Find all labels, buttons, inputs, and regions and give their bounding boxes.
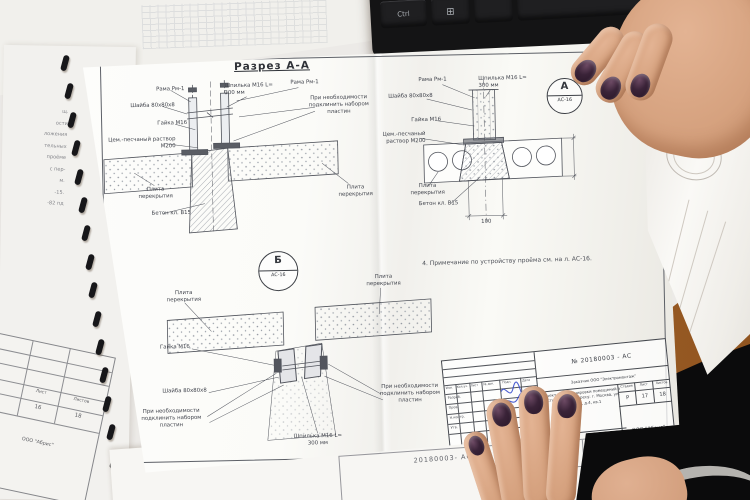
- label-washer: Шайба 80х80х8: [115, 102, 175, 110]
- label-b-washer: Шайба 80х80х8: [145, 388, 207, 396]
- faint-drawing-marks: [141, 0, 327, 49]
- fingernail: [627, 71, 653, 100]
- label-a-washer: Шайба 80х80х8: [375, 93, 433, 101]
- label-b-stud: Шпилька М16 L= 300 мм: [290, 433, 346, 448]
- left-page-text: щ.ости ложениятельных проёмес пер- м.-15…: [3, 104, 68, 210]
- keyboard-key: [474, 0, 513, 23]
- dimension-100: 100: [473, 218, 499, 225]
- label-a-nut: Гайка М16: [397, 117, 441, 125]
- label-a-mortar: Цем.-песчаный раствор М200: [361, 131, 425, 146]
- windows-key: ⊞: [431, 0, 470, 26]
- label-b-slab-right: Плита перекрытия: [360, 273, 406, 287]
- label-frame-right: Рама Рм-1: [290, 79, 334, 87]
- node-b-letter: Б: [259, 252, 297, 272]
- label-a-concrete: Бетон кл. В15: [419, 200, 479, 208]
- fingernail: [490, 401, 513, 428]
- label-b-shim-left: При необходимости подклинить набором пла…: [137, 408, 205, 430]
- node-b-sheet-ref: АС-16: [259, 271, 297, 282]
- firm-name: ООО "Абрис": [0, 430, 85, 455]
- label-b-slab-left: Плита перекрытия: [161, 290, 207, 304]
- ctrl-key: Ctrl: [380, 0, 427, 29]
- fingernail: [557, 393, 578, 418]
- label-mortar: Цем.-песчаный раствор М200: [103, 136, 175, 151]
- photo-scene: Ctrl ⊞ щ.ости ложениятельных проёмес пер…: [0, 0, 750, 500]
- label-concrete: Бетон кл. В15: [127, 210, 191, 218]
- label-slab-right: Плита перекрытия: [332, 184, 378, 198]
- label-shim-note: При необходимости подклинить набором пла…: [307, 94, 371, 116]
- label-a-frame: Рама Рм-1: [418, 76, 462, 84]
- main-page: Разрез А-А: [74, 36, 683, 478]
- fingernail: [466, 434, 486, 458]
- label-slab-left: Плита перекрытия: [132, 186, 178, 200]
- label-stud: Шпилька М16 L= 300 мм: [224, 82, 278, 97]
- label-b-nut: Гайка М16: [142, 344, 190, 352]
- label-a-stud: Шпилька М16 L= 300 мм: [478, 75, 530, 90]
- fingernail: [524, 390, 544, 415]
- node-a-sheet-ref: АС-16: [548, 96, 582, 106]
- label-a-slab: Плита перекрытия: [404, 182, 450, 196]
- label-b-shim-right: При необходимости подклинить набором пла…: [379, 383, 441, 405]
- fingernail: [596, 73, 624, 103]
- left-page-titleblock: Лист Листов 16 18 ООО "Абрис": [0, 333, 116, 500]
- label-nut: Гайка М16: [141, 120, 187, 128]
- label-frame-left: Рама Рм-1: [138, 86, 184, 94]
